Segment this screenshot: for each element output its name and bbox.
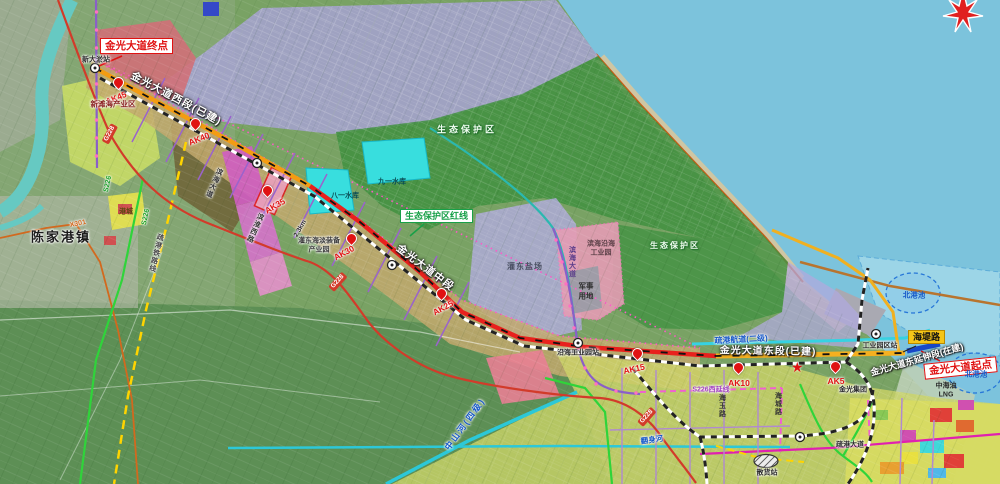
road-label-binhai-avenue: 滨海大道 [569,246,576,278]
zone-label-eco-area: 生态保护区 [437,126,497,135]
zone-label-military: 用地 [579,292,594,300]
ak-label: AK10 [728,379,750,388]
callout-jinguang-endpoint: 金光大道终点 [100,38,173,54]
planning-map[interactable]: 金光大道终点 金光大道起点 生态保护区红线 海堤路 金光大道西段(已建) 金光大… [0,0,1000,484]
zone-label-guandong-salt: 灌东盐场 [507,263,543,271]
zone-label-guandong-equip: 灌东海淡装备 [298,238,340,245]
station-label-bulk-cargo: 散货站 [757,470,778,477]
government-star-icon: ★ [791,360,804,374]
zone-label-eco-area: 生态保护区 [650,242,700,250]
station-label-yanhai-park: 沿海工业园站 [557,350,599,357]
road-label-haicheng: 海城路 [775,392,782,416]
zone-label-binhai-park: 滨海沿海 [587,241,615,248]
zone-label-north-basin: 北港池 [903,291,926,299]
water-label-bayi-reservoir: 八一水库 [331,193,359,200]
zone-label-guandong-equip: 产业园 [309,247,330,254]
road-name-east-segment: 金光大道东段(已建) [720,346,817,358]
map-graphics [0,0,1000,484]
zone-label-xintan-industry: 新滩海产业区 [91,100,136,108]
station-label-xindayu: 新大淤站 [82,57,110,64]
zone-label-north-basin: 北港池 [965,370,988,378]
ak-label: AK5 [827,377,844,386]
road-label-s226-west-ext: S226西延线 [692,387,729,394]
zone-label-lng: 中海油 [936,383,957,390]
callout-haidi-road: 海堤路 [908,330,945,344]
station-label-industry-park: 工业园区站 [863,343,898,350]
zone-label-binhai-park: 工业园 [591,250,612,257]
road-label-haiyu: 海玉路 [719,394,726,418]
road-label-shugang-avenue: 疏港大道 [836,442,864,449]
town-label-chenjiagang: 陈家港镇 [31,231,91,244]
zone-label-gangcheng: 港城 [119,209,133,216]
zone-label-military: 军事 [579,282,594,290]
zone-label-lng: LNG [939,392,954,399]
zone-label-jinguang-group: 金光集团 [839,387,867,394]
callout-eco-redline: 生态保护区红线 [400,209,473,223]
water-label-jiuyi-reservoir: 九一水库 [378,179,406,186]
